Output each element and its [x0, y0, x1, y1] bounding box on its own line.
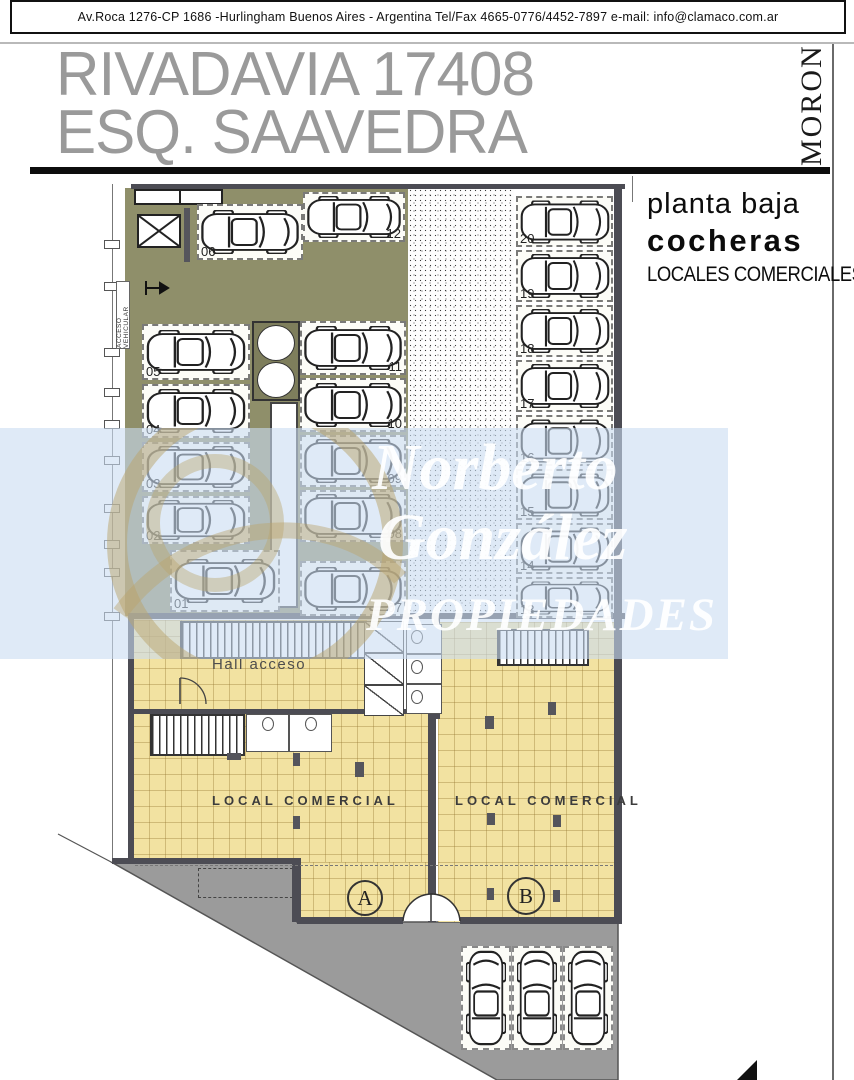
column: [553, 890, 560, 902]
title-underline: [30, 167, 830, 174]
watermark-name-1: Norberto: [372, 430, 618, 506]
local-a-label: LOCAL COMERCIAL: [212, 793, 399, 808]
wc-cell: [406, 684, 442, 714]
toilet-icon: [411, 660, 423, 674]
vent-circle: [257, 362, 295, 398]
stall-number: 20: [520, 231, 534, 246]
annotation-locales: LOCALES COMERCIALES: [647, 263, 854, 287]
parking-stall-19: 19: [516, 250, 613, 302]
toilet-icon: [262, 717, 274, 731]
wc-cell: [289, 714, 332, 752]
street-parking-stall: [512, 946, 562, 1050]
wc-cell: [246, 714, 289, 752]
annotation-cocheras: cocheras: [647, 223, 854, 259]
toilet-icon: [305, 717, 317, 731]
column: [355, 762, 364, 777]
car-top-view-icon: [517, 950, 557, 1046]
column: [227, 753, 241, 760]
canopy-divider: [179, 191, 181, 203]
agency-watermark: Norberto González PROPIEDADES: [0, 428, 728, 659]
unit-a-letter: A: [357, 886, 372, 911]
annotation-planta-baja: planta baja: [647, 188, 854, 221]
local-a-step-wall: [292, 858, 301, 922]
unit-a-badge: A: [347, 880, 383, 916]
elevator-shaft-box: [137, 214, 181, 248]
column: [485, 716, 494, 729]
local-b-label: LOCAL COMERCIAL: [455, 793, 642, 808]
car-top-view-icon: [568, 950, 608, 1046]
storefront-wall-a: [297, 917, 403, 924]
parking-stall-12: 12: [303, 192, 405, 242]
shaft-x-mark: [139, 216, 179, 246]
parking-stall-11: 11: [300, 321, 406, 375]
stall-number: 18: [520, 341, 534, 356]
parking-stall-17: 17: [516, 360, 613, 412]
stall-number: 11: [389, 359, 403, 374]
column: [487, 813, 495, 825]
local-a-west-wall: [128, 712, 134, 862]
column: [548, 702, 556, 715]
agency-address-bar: Av.Roca 1276-CP 1686 -Hurlingham Buenos …: [10, 0, 846, 34]
watermark-name-2: González: [378, 500, 627, 576]
local-a-south-wall: [112, 858, 298, 864]
plan-annotation: planta baja cocheras LOCALES COMERCIALES: [647, 188, 854, 287]
acceso-vehicular-label: ACCESO VEHICULAR: [116, 281, 130, 349]
restrooms-a: [246, 714, 332, 752]
sidewalk-dashed-box: [198, 868, 293, 898]
city-label: MORON: [791, 46, 833, 164]
parking-stall-20: 20: [516, 196, 613, 247]
vent-circle: [257, 325, 295, 361]
street-parking-stall: [461, 946, 511, 1050]
stall-number: 05: [146, 364, 160, 379]
parking-stall-06: 06: [197, 204, 303, 260]
column: [293, 753, 300, 766]
title-line-1: RIVADAVIA 17408: [56, 46, 534, 104]
car-top-view-icon: [146, 330, 246, 374]
storefront-wall-b: [460, 917, 618, 924]
unit-b-letter: B: [519, 884, 533, 909]
unit-b-badge: B: [507, 877, 545, 915]
column: [487, 888, 494, 900]
stall-number: 12: [387, 226, 401, 241]
car-top-view-icon: [466, 950, 506, 1046]
parking-stall-18: 18: [516, 305, 613, 357]
elevator-cell: [364, 685, 404, 716]
local-ab-divider-wall: [428, 714, 436, 922]
column: [553, 815, 561, 827]
column: [293, 816, 300, 829]
street-parking-stall: [563, 946, 613, 1050]
dimension-tick: [632, 176, 633, 202]
entry-canopy: [134, 189, 223, 205]
floor-plan-page: Av.Roca 1276-CP 1686 -Hurlingham Buenos …: [0, 0, 854, 1080]
dimension-tick: [104, 240, 120, 249]
toilet-icon: [411, 690, 423, 704]
car-top-view-icon: [146, 389, 246, 433]
title-line-2: ESQ. SAAVEDRA: [56, 104, 534, 162]
stall-number: 19: [520, 286, 534, 301]
agency-address-text: Av.Roca 1276-CP 1686 -Hurlingham Buenos …: [78, 10, 779, 24]
awning-dashed-line: [135, 865, 613, 866]
dimension-tick: [104, 348, 120, 357]
dimension-tick: [104, 388, 120, 397]
stall-number: 17: [520, 396, 534, 411]
page-title: RIVADAVIA 17408 ESQ. SAAVEDRA: [56, 46, 534, 162]
stall-number: 06: [201, 244, 215, 259]
parking-stall-10: 10: [300, 378, 406, 432]
watermark-propiedades: PROPIEDADES: [366, 588, 717, 642]
local-a-stairs: [150, 714, 245, 756]
shaft-wall: [184, 208, 190, 262]
parking-stall-05: 05: [142, 324, 250, 380]
vent-shaft: [252, 321, 300, 401]
